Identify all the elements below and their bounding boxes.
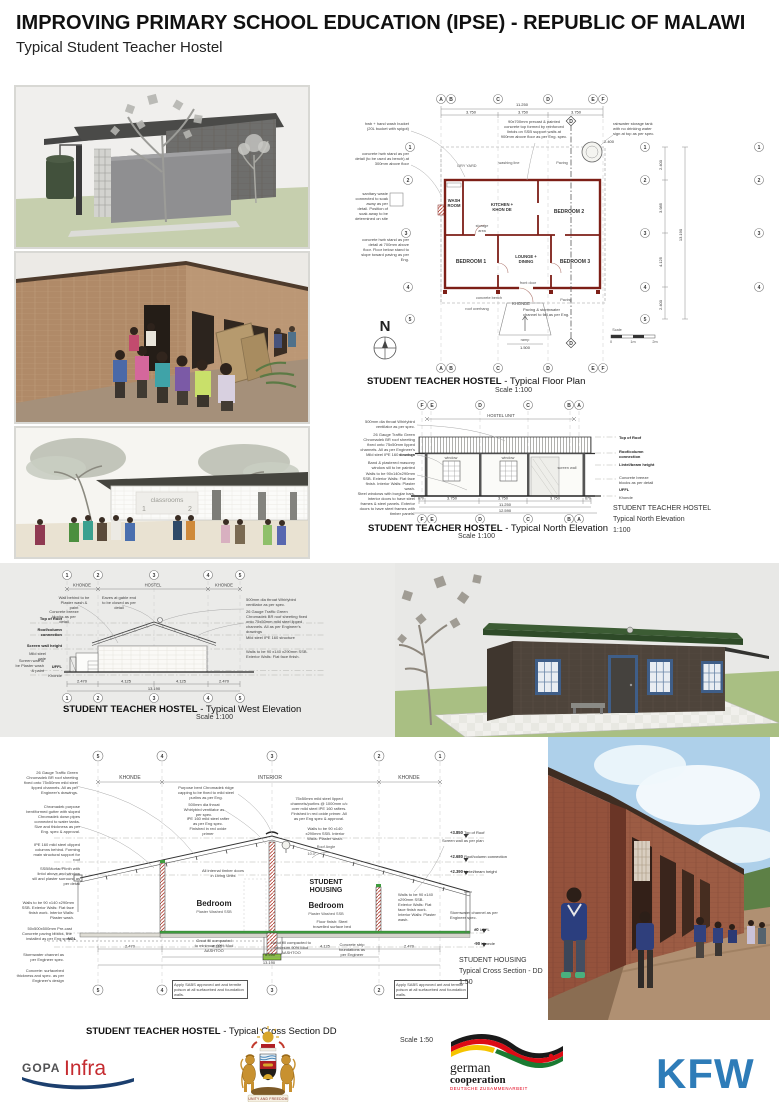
cross-section-side-block: STUDENT HOUSINGTypical Cross Section - D… [459,956,543,989]
classrooms-render: classrooms 1 2 [16,428,308,557]
svg-text:3: 3 [644,231,647,237]
infra-text: Infra [64,1057,106,1080]
svg-text:B: B [449,366,453,372]
svg-text:KHONDE: KHONDE [512,301,530,306]
svg-text:4: 4 [407,285,410,291]
svg-text:1: 1 [409,145,412,151]
svg-text:STUDENT: STUDENT [309,879,343,886]
svg-text:window: window [502,456,515,460]
svg-text:11.250: 11.250 [499,502,512,507]
svg-text:4.125: 4.125 [121,679,132,684]
svg-text:F: F [601,366,604,372]
nelev-right-1: Roof/column connection [619,449,655,459]
svg-text:5: 5 [97,754,100,760]
svg-text:13.190: 13.190 [678,228,683,241]
svg-text:A: A [577,403,581,409]
svg-text:2.400: 2.400 [604,139,615,144]
xsec-level-4: -90 Khonde [474,941,534,947]
svg-text:F: F [601,97,604,103]
svg-text:3: 3 [153,696,156,702]
page-title: IMPROVING PRIMARY SCHOOL EDUCATION (IPSE… [16,12,745,35]
svg-text:2.470: 2.470 [219,679,230,684]
west-elevation-scale: Scale 1:100 [196,714,233,721]
xsec-left-2: IPE 160 mild steel clipped columns behin… [28,842,80,862]
svg-text:1: 1 [66,573,69,579]
svg-text:2.470: 2.470 [77,679,88,684]
svg-text:1: 1 [644,145,647,151]
svg-text:2: 2 [97,573,100,579]
hostel-render [395,563,779,737]
xsec-note-whirly: 500mm dia throat Whirlybird ventilator a… [182,802,226,817]
svg-text:4: 4 [161,988,164,994]
svg-text:1: 1 [66,696,69,702]
nelev-right-4: UFFL [619,487,649,492]
north-elevation-drawing: HOSTEL UNIT window window screen wall 67… [355,395,779,523]
svg-text:2.400: 2.400 [658,159,663,170]
svg-text:Bedroom: Bedroom [196,899,231,908]
xsec-sabs-box-2: Apply SABS approved ant and termite pois… [394,980,468,999]
xsec-note-floor: Floor finish: Steel trowelled surface be… [308,919,356,929]
north-arrow-icon [374,337,396,359]
svg-text:F: F [420,403,423,409]
xsec-note-storm-right: Stormwater channel as per Engineer spec. [450,910,504,920]
page-subtitle: Typical Student Teacher Hostel [16,39,745,56]
welev-note-ipe: Mild steel IPE 160 structure [246,635,308,640]
svg-text:HOUSING: HOUSING [310,887,343,894]
photo-render-classrooms: classrooms 1 2 [14,426,310,559]
svg-text:C: C [496,366,500,372]
svg-text:5: 5 [97,988,100,994]
svg-text:10.0°: 10.0° [308,852,317,856]
xsec-left-3: SSB/Mortar/Plinth with lintol above and … [32,866,80,886]
svg-text:INTERIOR: INTERIOR [258,775,282,781]
svg-text:2m: 2m [652,340,657,344]
svg-text:HOSTEL: HOSTEL [145,583,162,588]
svg-text:4.125: 4.125 [658,256,663,267]
logo-german-cooperation: german cooperation DEUTSCHE ZUSAMMENARBE… [445,1026,573,1092]
svg-text:area: area [478,229,486,233]
xsec-level-0: +3.850 Top of Roof [450,830,530,836]
north-arrow-label: N [380,318,391,335]
nelev-right-3: Concrete breeze blocks as per detail [619,475,659,485]
svg-text:5: 5 [644,317,647,323]
xsec-note-purlins: 75x50mm mild steel lipped channels/purli… [290,796,348,821]
svg-text:2: 2 [758,178,761,184]
welev-left-4: Khonde [32,673,62,678]
xsec-note-screen: Screen wall as per plan [442,838,494,843]
xsec-level-2: +2.390 Lintel/beam height [450,869,526,875]
photo-brick-school-children [14,251,310,424]
svg-text:Paving: Paving [556,161,568,165]
svg-text:4: 4 [161,754,164,760]
welev-left-2: Screen wall height [24,643,62,648]
malawi-lion-right [281,1055,296,1092]
svg-text:DINING: DINING [519,259,534,264]
north-elevation-scale: Scale 1:100 [458,533,495,540]
photo-render-hostel-gray [14,85,310,249]
svg-text:4: 4 [758,285,761,291]
svg-text:1m: 1m [630,340,635,344]
cross-section-scale: Scale 1:50 [400,1037,433,1044]
svg-text:D: D [546,366,550,372]
svg-text:screen wall: screen wall [558,466,577,470]
welev-note-eaves: Eaves at gable end to be closed as per d… [100,595,138,610]
plan-note-hwb: hwb + hand wash bucket (20L bucket with … [357,121,409,131]
svg-text:B: B [449,97,453,103]
svg-text:1: 1 [439,754,442,760]
svg-text:D: D [478,403,482,409]
nelev-right-0: Top of Roof [619,435,659,440]
svg-text:BEDROOM 2: BEDROOM 2 [554,209,585,215]
logo-malawi-coat-of-arms: UNITY AND FREEDOM [233,1026,303,1102]
svg-text:4: 4 [644,285,647,291]
xsec-left-6: Stormwater channel as per Engineer spec. [18,952,64,962]
malawi-shield [260,1054,276,1080]
svg-text:KHONDE: KHONDE [119,775,141,781]
svg-text:13.190: 13.190 [263,960,276,965]
svg-text:D: D [569,119,573,125]
page-header: IMPROVING PRIMARY SCHOOL EDUCATION (IPSE… [16,12,745,56]
xsec-left-5: 50x500x500mm Pre-cast Concrete paving bl… [16,926,72,941]
welev-note-whirly: 500mm dia throat Whirlybird ventilator a… [246,597,308,607]
xsec-note-strip: Concrete strip foundations as per Engine… [336,942,368,957]
svg-text:2: 2 [97,696,100,702]
svg-text:5: 5 [239,573,242,579]
svg-text:3: 3 [271,754,274,760]
svg-text:3: 3 [758,231,761,237]
svg-text:3: 3 [271,988,274,994]
svg-text:Plaster Washed SSB: Plaster Washed SSB [308,912,344,916]
xsec-note-ridge: Purpose bent Chromadek ridge capping to … [174,785,238,800]
classrooms-sign: classrooms [151,497,185,504]
nelev-note-4: Walls to be 90x140x290mm SSB. Exterior W… [357,471,415,491]
svg-text:3.750: 3.750 [498,496,509,501]
logo-kfw: KFW [656,1050,755,1098]
photo-render-hostel-color [395,563,779,737]
svg-text:2: 2 [378,754,381,760]
svg-text:Paving: Paving [560,298,572,302]
nelev-note-2: Mild steel IPE 160 structure [357,452,415,457]
svg-text:2: 2 [644,178,647,184]
west-elevation-drawing: KHONDE HOSTEL KHONDE 2.470 4.125 4.125 2… [14,565,434,703]
svg-text:D: D [546,97,550,103]
svg-text:3.750: 3.750 [447,496,458,501]
welev-left-1: Roof/column connection [24,627,62,637]
svg-text:BEDROOM 1: BEDROOM 1 [456,259,487,265]
malawi-motto: UNITY AND FREEDOM [248,1097,287,1101]
plan-dim-total: 11.250 [516,102,529,107]
svg-text:ROOM: ROOM [447,203,461,208]
svg-text:A: A [439,97,443,103]
svg-text:C: C [526,403,530,409]
svg-text:Plaster Washed SSB: Plaster Washed SSB [196,910,232,914]
plan-note-stand700: concrete hwb stand as per detail at 700m… [361,237,409,262]
svg-text:C: C [496,97,500,103]
svg-text:KHONDE: KHONDE [73,583,91,588]
north-elevation-side-block: STUDENT TEACHER HOSTELTypical North Elev… [613,504,711,537]
svg-text:670: 670 [585,497,591,501]
nelev-right-2: Lintel/beam height [619,462,655,467]
svg-text:3.750: 3.750 [550,496,561,501]
welev-note-walls: Walls to be 90 x140 x290mm SSB. Exterior… [246,649,308,659]
construction-photo [548,737,770,1020]
photo-hostel-construction [548,737,770,1020]
svg-text:B: B [567,403,571,409]
svg-text:Bedroom: Bedroom [308,901,343,910]
svg-text:Roof Angle: Roof Angle [317,845,336,849]
svg-text:KHON DE: KHON DE [492,207,512,212]
svg-text:5: 5 [239,696,242,702]
malawi-crest [252,1026,284,1051]
svg-text:4.125: 4.125 [320,944,331,949]
xsec-note-grout-2: Grout fill compacted to minimum 90% Mod … [268,940,314,955]
north-elevation: HOSTEL UNIT window window screen wall 67… [355,395,779,523]
cooperation-text: cooperation [450,1074,506,1086]
svg-text:670: 670 [418,497,424,501]
svg-text:3.750: 3.750 [518,110,529,115]
svg-text:2.400: 2.400 [658,299,663,310]
svg-text:storage: storage [476,224,489,228]
svg-text:4.125: 4.125 [176,679,187,684]
svg-text:2.470: 2.470 [125,944,136,949]
plan-note-paving-channel: Paving & stormwater channel to fall as p… [523,307,575,317]
xsec-level-1: +2.680 Roof/column connection [450,854,526,860]
welev-note-screenwall: Screen wall to be Plaster wash & paint [14,658,44,673]
svg-text:5: 5 [409,317,412,323]
svg-text:KHONDE: KHONDE [215,583,233,588]
german-text: german [450,1060,491,1075]
svg-text:washing line: washing line [499,161,520,165]
classroom-number-2: 2 [188,506,192,513]
svg-text:0: 0 [610,340,612,344]
brick-building-photo [16,253,308,422]
deutsche-zusammenarbeit-text: DEUTSCHE ZUSAMMENARBEIT [450,1086,528,1091]
plan-note-lintol: 90x700mm precast & painted concrete top … [500,119,568,139]
plan-note-soak: sanitary waste connected to soak away as… [355,191,388,221]
svg-text:Scale: Scale [612,328,622,332]
classroom-number-1: 1 [142,506,146,513]
west-elevation-title: STUDENT TEACHER HOSTEL - Typical West El… [63,704,301,715]
malawi-lion-left [241,1055,256,1092]
plan-note-tank: rainwater storage tank with no drinking … [613,121,655,136]
svg-text:window: window [445,456,458,460]
xsec-note-walls-right: Walls to be 90 x140 x290mm SSB. Exterior… [398,892,436,922]
svg-text:1.500: 1.500 [520,345,531,350]
svg-text:3: 3 [153,573,156,579]
svg-text:2.470: 2.470 [404,944,415,949]
svg-text:3.750: 3.750 [571,110,582,115]
xsec-note-walls-int: Walls to be 90 x140 x290mm SSB. Interior… [302,826,348,841]
xsec-note-grout-1: Grout fill compacted to minimum 90% Mod … [194,938,234,953]
svg-text:12.590: 12.590 [499,508,512,513]
svg-text:BEDROOM 3: BEDROOM 3 [560,259,591,265]
svg-text:4: 4 [207,573,210,579]
xsec-left-1: Chromadek purpose bent/formed gutter wit… [26,804,80,834]
svg-text:4: 4 [207,696,210,702]
svg-text:D: D [569,341,573,347]
svg-text:roof overhang: roof overhang [465,307,488,311]
svg-text:13.190: 13.190 [148,686,161,691]
svg-text:concrete bench: concrete bench [476,296,502,300]
west-elevation: KHONDE HOSTEL KHONDE 2.470 4.125 4.125 2… [14,565,434,703]
floor-plan: 11.250 3.750 3.750 3.750 2.400 D D DRY Y… [355,85,779,375]
gopa-text: GOPA [22,1061,60,1075]
svg-text:2: 2 [378,988,381,994]
svg-text:3.985: 3.985 [658,202,663,213]
xsec-left-4: Walls to be 90 x140 x290mm SSB. Exterior… [16,900,74,920]
xsec-left-7: Concrete: surfacebed thickness and spec.… [16,968,64,983]
floor-plan-scale: Scale 1:100 [495,387,532,394]
xsec-sabs-box-1: Apply SABS approved ant and termite pois… [172,980,248,999]
svg-text:3.750: 3.750 [466,110,477,115]
plan-note-stand300: concrete hwb stand as per detail (to be … [355,151,409,166]
render-gray-building [16,87,308,247]
nelev-note-3: Band & plastered masonry window sill to … [357,460,415,470]
nelev-right-5: Khonde [619,495,649,500]
xsec-level-3: ±0 UFFL [474,927,534,933]
xsec-note-doors: All internal timber doors in Living Unit… [200,868,246,878]
nelev-note-0: 500mm dia throat Whirlybird ventilator a… [357,419,415,429]
svg-text:2: 2 [407,178,410,184]
svg-text:ramp: ramp [521,338,530,342]
svg-text:front door: front door [520,281,537,285]
xsec-left-0: 26 Gauge Traffic Green Chromadek BR roof… [20,770,78,795]
welev-note-wall-behind: Wall behind to be Plaster wash & paint [58,595,90,610]
svg-text:HOSTEL UNIT: HOSTEL UNIT [487,413,515,418]
svg-text:KHONDE: KHONDE [398,775,420,781]
svg-text:DRY YARD: DRY YARD [457,164,476,168]
welev-note-breeze: Concrete breeze blocks as per detail [48,609,80,624]
floor-plan-title: STUDENT TEACHER HOSTEL - Typical Floor P… [367,376,585,387]
logo-gopa-infra: GOPA Infra [20,1048,150,1092]
nelev-note-5: Steel windows with burglar bars. Interio… [357,491,415,516]
svg-text:A: A [439,366,443,372]
welev-note-chromadek: 26 Gauge Traffic Green Chromadek BR roof… [246,609,308,634]
svg-text:1: 1 [758,145,761,151]
xsec-note-rafter: IPE 160 mild steel rafter as per Eng spe… [186,816,230,836]
